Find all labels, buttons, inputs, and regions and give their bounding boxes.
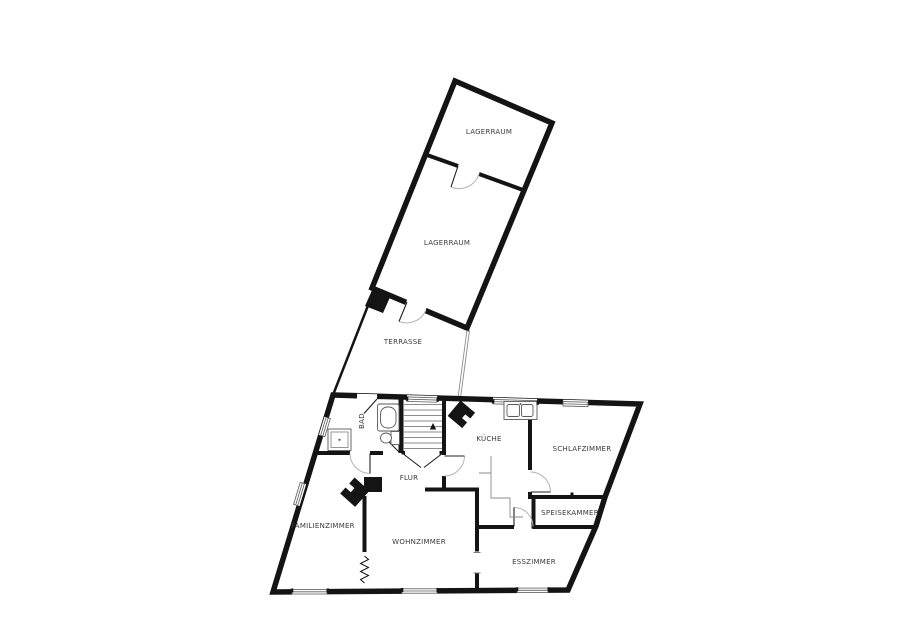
schlafzimmer-door-arc — [531, 472, 551, 492]
label-flur: FLUR — [400, 474, 419, 482]
radiator-zigzag — [361, 556, 369, 583]
storage-door-leaf — [451, 166, 458, 187]
storage-divider-wall — [427, 155, 523, 190]
wall-tick — [401, 211, 404, 214]
window — [402, 587, 437, 595]
storage-terrace-door-gap — [404, 297, 427, 314]
label-esszimmer: ESSZIMMER — [512, 558, 556, 566]
label-terrasse: TERRASSE — [383, 338, 422, 346]
stair-jamb — [402, 451, 406, 455]
floorplan-svg: LAGERRAUM LAGERRAUM TERRASSE BAD FLUR KÜ… — [0, 0, 900, 636]
terrace-right-edge — [458, 330, 470, 398]
toilet-tank — [391, 432, 400, 445]
label-kueche: KÜCHE — [476, 434, 501, 443]
stair-jamb — [440, 451, 444, 455]
storage-building — [365, 81, 552, 328]
wall-tick — [516, 207, 519, 210]
label-bad: BAD — [358, 413, 366, 429]
label-lagerraum-lower: LAGERRAUM — [424, 239, 470, 247]
wall-tick — [381, 262, 384, 265]
kitchen-fixtures — [448, 401, 537, 517]
stair-treads — [404, 405, 442, 449]
staircase — [402, 405, 444, 455]
entry-door-gap — [357, 394, 377, 403]
room-labels: LAGERRAUM LAGERRAUM TERRASSE BAD FLUR KÜ… — [291, 128, 611, 566]
bathtub-inner — [381, 407, 397, 428]
window — [563, 400, 588, 409]
sink-basin — [522, 405, 534, 417]
storage-door-arc — [451, 174, 479, 189]
window — [407, 395, 437, 404]
storage-terrace-door-leaf — [399, 302, 407, 322]
window — [517, 586, 548, 594]
shower-drain — [338, 439, 340, 441]
window — [292, 588, 327, 596]
label-lagerraum-upper: LAGERRAUM — [466, 128, 512, 136]
terrace-left-edge — [333, 303, 369, 395]
label-wohnzimmer: WOHNZIMMER — [392, 538, 446, 546]
stair-double-door-leaves — [404, 455, 441, 468]
sink-basin — [507, 405, 520, 417]
bad-flur-door-arc — [350, 454, 370, 474]
storage-outer-wall — [372, 81, 552, 328]
kueche-door-arc — [445, 456, 465, 476]
living-fixtures — [340, 477, 382, 583]
room-opening — [474, 552, 481, 574]
label-familienzimmer: FAMILIENZIMMER — [291, 522, 355, 530]
floorplan-canvas: LAGERRAUM LAGERRAUM TERRASSE BAD FLUR KÜ… — [0, 0, 900, 636]
toilet-bowl — [381, 433, 392, 443]
label-schlafzimmer: SCHLAFZIMMER — [553, 445, 612, 453]
house — [273, 394, 640, 596]
stove-kueche — [448, 401, 475, 429]
label-speisekammer: SPEISEKAMMER — [541, 509, 599, 517]
faucet — [520, 403, 522, 405]
